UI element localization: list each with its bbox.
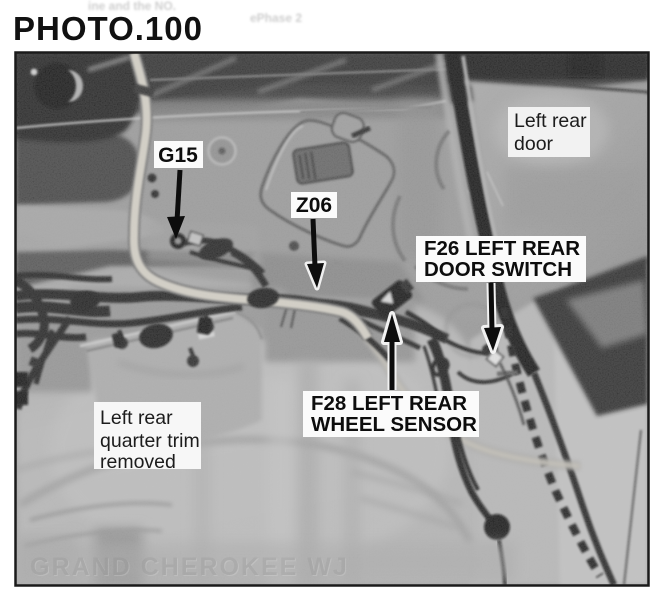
svg-text:WHEEL SENSOR: WHEEL SENSOR [311, 413, 477, 436]
svg-text:F26 LEFT REAR: F26 LEFT REAR [424, 237, 580, 260]
svg-text:ePhase 2: ePhase 2 [250, 11, 302, 25]
svg-text:Z06: Z06 [296, 194, 332, 217]
svg-text:PHOTO.100: PHOTO.100 [13, 10, 203, 47]
svg-text:F28 LEFT REAR: F28 LEFT REAR [311, 392, 467, 415]
svg-text:G15: G15 [158, 144, 198, 167]
svg-text:quarter trim: quarter trim [100, 430, 200, 452]
svg-text:GRAND CHEROKEE WJ: GRAND CHEROKEE WJ [30, 553, 349, 581]
svg-text:Left rear: Left rear [514, 110, 587, 132]
svg-text:removed: removed [100, 451, 176, 473]
svg-text:Left rear: Left rear [100, 407, 173, 429]
svg-text:DOOR SWITCH: DOOR SWITCH [424, 258, 572, 281]
svg-text:door: door [514, 133, 554, 155]
